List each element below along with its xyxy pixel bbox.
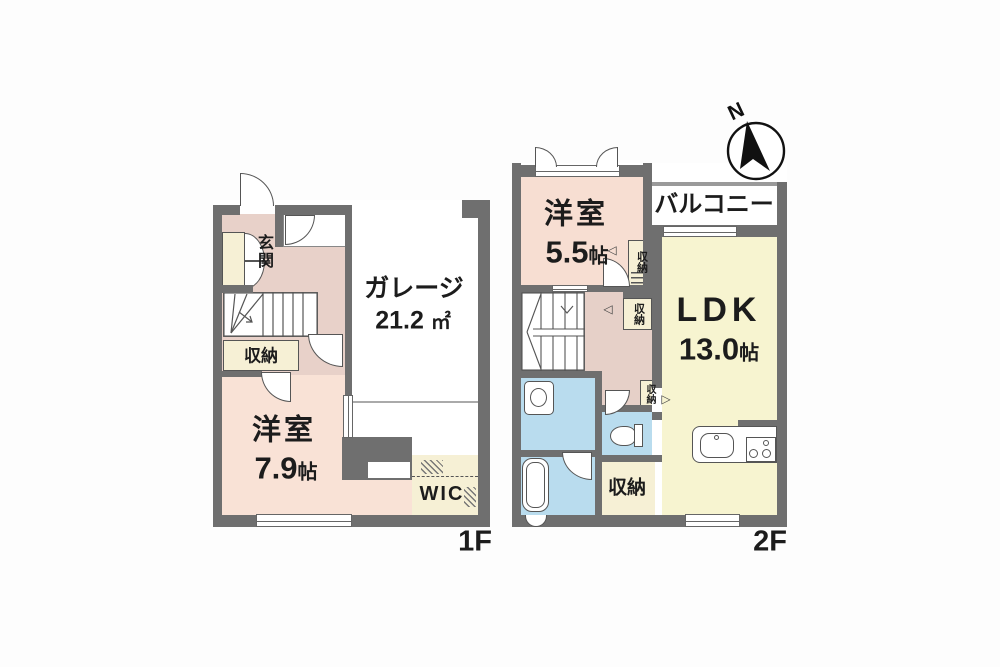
closet-small-label: 収納 [644,384,654,404]
wall-niche [368,462,410,478]
garage-parking-line [352,401,478,403]
wall [512,515,787,527]
front-door-arc [240,173,274,206]
compass-n-label: N [724,98,747,125]
stove-burner [763,440,769,446]
bedroom1-name: 洋室 [252,417,316,446]
window [343,395,353,438]
floor2-ldk-area [662,237,777,515]
toilet-tank [634,424,643,447]
kitchen-faucet [714,435,719,440]
window [256,514,352,527]
wall [623,288,653,298]
bedroom1-size: 7.9帖 [254,453,317,484]
wall [275,214,283,247]
bedroom2-size: 5.5帖 [545,237,608,268]
casement-window-arc [535,147,557,167]
ldk-name: LDK [677,293,762,327]
wall [652,412,662,420]
bedroom2-name: 洋室 [544,201,608,230]
bathtub-inner [526,462,545,508]
wall [521,371,602,378]
wall [595,377,602,455]
wall [597,455,662,462]
garage-size-unit: ㎡ [431,312,451,334]
wall [275,205,352,215]
wall [643,163,652,298]
staircase-1f [223,292,318,337]
floor2-label: 2F [753,528,787,557]
vanity-basin [530,388,547,407]
wic-boundary-dashed-line [412,476,478,477]
wall [213,205,240,215]
toilet-bowl [610,426,636,446]
storage2-label: 収納 [608,479,646,498]
ldk-size-num: 13.0 [679,332,739,367]
storage-label: 収納 [244,348,278,365]
stove-burner [749,449,758,458]
staircase-2f [521,292,585,371]
wall [345,214,352,395]
wic-hanger-marks [464,487,476,507]
wall [512,165,535,177]
wic-label: WIC [420,484,465,504]
closet-mid-label: 収納 [633,303,644,325]
floor1-label: 1F [458,528,492,557]
window [552,285,588,292]
floor1-bedroom-area-extension [342,480,417,515]
garage-size-num: 21.2 [375,307,424,335]
garage-name: ガレージ [364,277,464,302]
ldk-size: 13.0帖 [679,334,759,365]
closet-opening-marker: ◁ [603,302,612,316]
floorplan-canvas: 玄関 収納 洋室 7.9帖 ガレージ 21.2 ㎡ WIC 1F [0,0,1000,667]
garage-size: 21.2 ㎡ [375,309,451,334]
wall [478,200,490,527]
closet-top-label: 収納 [636,251,647,273]
compass-north-indicator: N [720,95,790,187]
balcony-label: バルコニー [654,193,774,217]
bedroom2-size-unit: 帖 [589,246,609,268]
wic-hatch-marks [421,460,443,474]
bedroom2-size-num: 5.5 [545,235,588,270]
wall [222,371,262,377]
casement-window-arc [596,147,618,167]
wall [652,237,662,388]
wall [595,455,602,515]
wall [512,163,521,527]
floor1-shoe-closet [222,232,245,290]
ldk-opening-marker: ▷ [661,392,670,406]
wall [777,182,787,527]
sliding-window [663,226,737,237]
wall [213,285,253,293]
entrance-label: 玄関 [255,234,271,270]
wall [213,205,222,527]
ldk-size-unit: 帖 [739,343,759,365]
window [685,514,740,527]
bedroom1-size-num: 7.9 [254,451,297,486]
stove-burner [762,449,771,458]
bedroom1-size-unit: 帖 [298,462,318,484]
closet-opening-marker: ◁ [607,243,616,257]
